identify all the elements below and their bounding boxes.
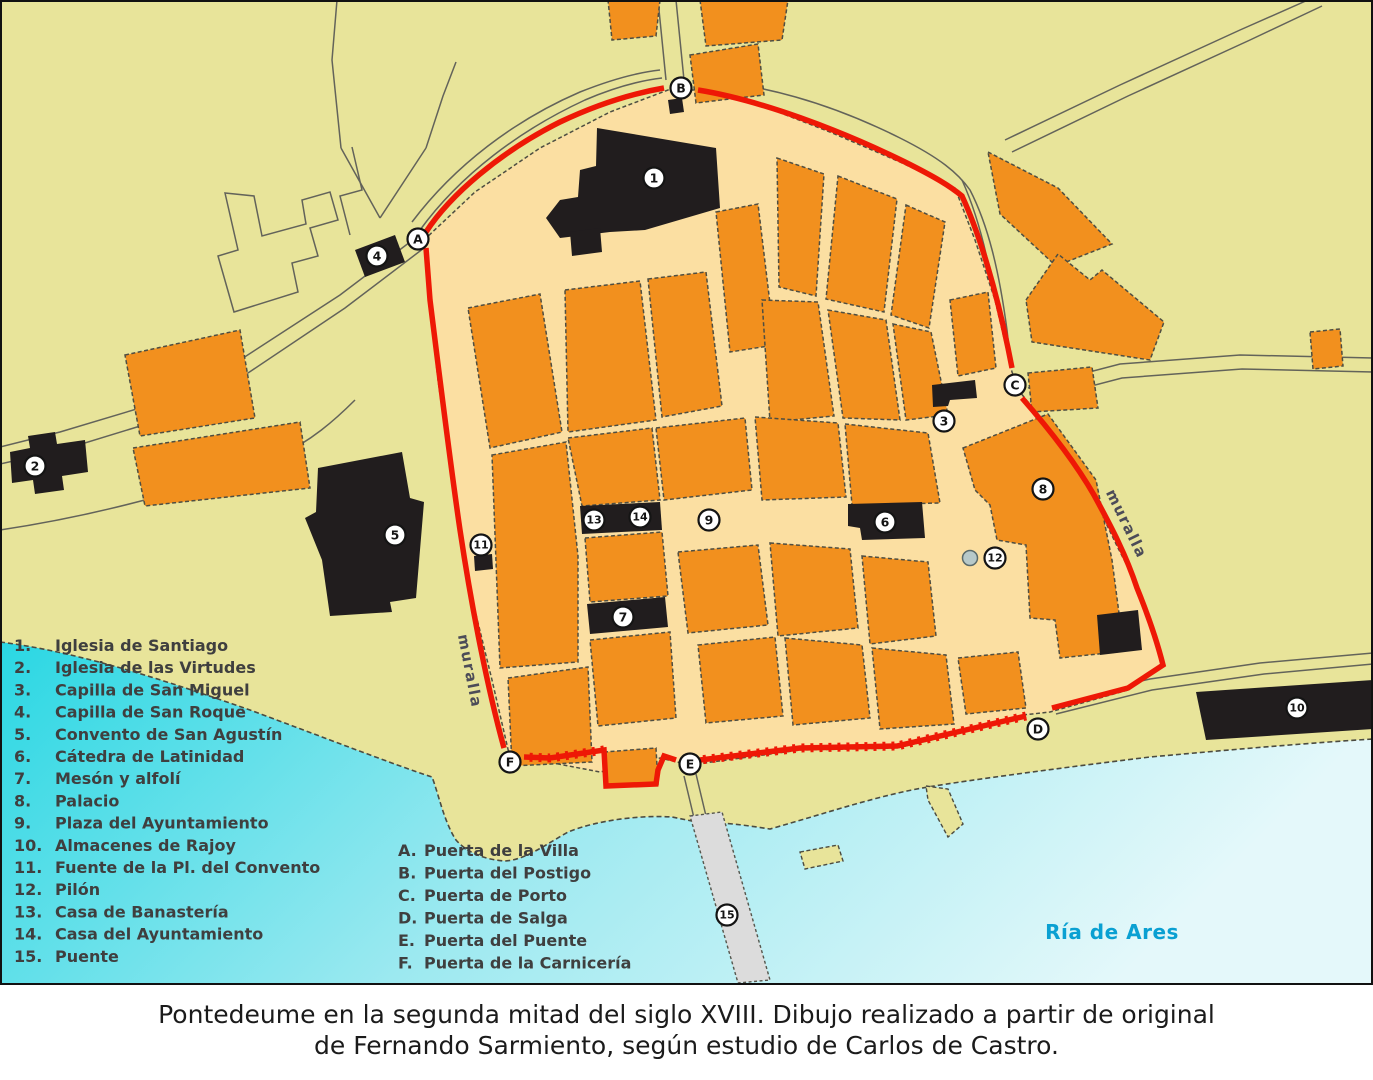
marker-label: 10 — [1289, 702, 1305, 715]
legend-item-label: Casa de Banastería — [55, 902, 229, 921]
pontedeume-historic-map: muralla muralla Ría de Ares 1.Iglesia de… — [0, 0, 1373, 1080]
marker-10: 10 — [1287, 698, 1308, 719]
marker-4: 4 — [367, 246, 388, 267]
legend-item-label: Palacio — [55, 791, 119, 810]
legend-item-number: 15. — [14, 947, 42, 966]
legend-item-label: Pilón — [55, 880, 100, 899]
legend-item-number: 1. — [14, 636, 31, 655]
marker-label: 9 — [705, 513, 714, 528]
legend-item-letter: B. — [398, 864, 416, 883]
map-svg: muralla muralla Ría de Ares 1.Iglesia de… — [0, 0, 1373, 985]
marker-8: 8 — [1033, 479, 1054, 500]
marker-15: 15 — [717, 905, 738, 926]
legend-item-number: 8. — [14, 791, 31, 810]
legend-item-label: Puerta de Salga — [424, 909, 568, 928]
marker-label: F — [506, 755, 515, 770]
legend-item-number: 12. — [14, 880, 42, 899]
marker-label: 7 — [619, 610, 628, 625]
ria-de-ares-label: Ría de Ares — [1045, 920, 1179, 944]
legend-item-label: Puerta de la Carnicería — [424, 954, 631, 973]
marker-label: 11 — [473, 539, 488, 552]
legend-item-label: Plaza del Ayuntamiento — [55, 814, 269, 833]
marker-label: 12 — [987, 552, 1002, 565]
legend-item-label: Casa del Ayuntamiento — [55, 925, 263, 944]
legend-item-number: 4. — [14, 703, 31, 722]
building-east-square — [1097, 610, 1142, 655]
legend-item-label: Puerta de Porto — [424, 886, 567, 905]
marker-label: 13 — [586, 514, 601, 527]
legend-item-number: 11. — [14, 858, 42, 877]
legend-item-number: 6. — [14, 747, 31, 766]
legend-item-label: Iglesia de las Virtudes — [55, 658, 256, 677]
legend-item-number: 10. — [14, 836, 42, 855]
marker-label: 3 — [940, 414, 949, 429]
marker-D: D — [1028, 719, 1049, 740]
marker-14: 14 — [630, 507, 651, 528]
legend-item-letter: E. — [398, 931, 415, 950]
caption-line-2: de Fernando Sarmiento, según estudio de … — [0, 1030, 1373, 1061]
marker-label: C — [1010, 378, 1019, 393]
marker-7: 7 — [613, 607, 634, 628]
map-area: muralla muralla Ría de Ares 1.Iglesia de… — [0, 0, 1373, 985]
legend-item-label: Puerta del Postigo — [424, 864, 591, 883]
marker-label: 5 — [391, 528, 400, 543]
marker-6: 6 — [875, 512, 896, 533]
marker-13: 13 — [584, 510, 605, 531]
marker-C: C — [1005, 375, 1026, 396]
legend-item-label: Puerta del Puente — [424, 931, 587, 950]
legend-item-label: Almacenes de Rajoy — [55, 836, 236, 855]
marker-label: A — [413, 232, 423, 247]
marker-label: E — [686, 757, 695, 772]
marker-label: B — [676, 81, 686, 96]
legend-item-letter: D. — [398, 909, 417, 928]
caption-line-1: Pontedeume en la segunda mitad del siglo… — [0, 999, 1373, 1030]
marker-F: F — [500, 752, 521, 773]
legend-item-number: 2. — [14, 658, 31, 677]
building-postigo-gatehouse — [668, 98, 684, 114]
legend-item-label: Puerta de la Villa — [424, 841, 579, 860]
marker-3: 3 — [934, 411, 955, 432]
legend-item-number: 5. — [14, 725, 31, 744]
marker-E: E — [680, 754, 701, 775]
legend-item-number: 3. — [14, 680, 31, 699]
marker-A: A — [408, 229, 429, 250]
marker-label: D — [1033, 722, 1043, 737]
legend-item-letter: F. — [398, 954, 413, 973]
building-santiago-steps — [570, 228, 602, 256]
marker-B: B — [671, 78, 692, 99]
marker-label: 6 — [881, 515, 890, 530]
marker-11: 11 — [471, 535, 492, 556]
legend-item-number: 7. — [14, 769, 31, 788]
legend-item-label: Iglesia de Santiago — [55, 636, 228, 655]
pilon-basin — [963, 551, 978, 566]
legend-item-label: Fuente de la Pl. del Convento — [55, 858, 320, 877]
legend-item-letter: A. — [398, 841, 417, 860]
marker-5: 5 — [385, 525, 406, 546]
legend-item-number: 14. — [14, 925, 42, 944]
marker-label: 4 — [373, 249, 382, 264]
legend-item-label: Cátedra de Latinidad — [55, 747, 244, 766]
marker-12: 12 — [985, 548, 1006, 569]
carniceria-bump — [604, 748, 658, 787]
legend-item-number: 9. — [14, 814, 31, 833]
marker-1: 1 — [644, 168, 665, 189]
legend-item-label: Puente — [55, 947, 119, 966]
legend-item-number: 13. — [14, 902, 42, 921]
marker-9: 9 — [699, 510, 720, 531]
legend-item-label: Capilla de San Miguel — [55, 680, 250, 699]
legend-item-label: Mesón y alfolí — [55, 769, 182, 788]
marker-label: 14 — [632, 511, 648, 524]
marker-label: 15 — [719, 909, 734, 922]
marker-label: 1 — [650, 171, 659, 186]
legend-item-label: Capilla de San Roque — [55, 703, 246, 722]
map-caption: Pontedeume en la segunda mitad del siglo… — [0, 985, 1373, 1080]
marker-label: 2 — [31, 459, 40, 474]
building-fuente-convento — [474, 554, 493, 571]
legend-item-label: Convento de San Agustín — [55, 725, 282, 744]
legend-item-letter: C. — [398, 886, 416, 905]
marker-2: 2 — [25, 456, 46, 477]
marker-label: 8 — [1039, 482, 1048, 497]
